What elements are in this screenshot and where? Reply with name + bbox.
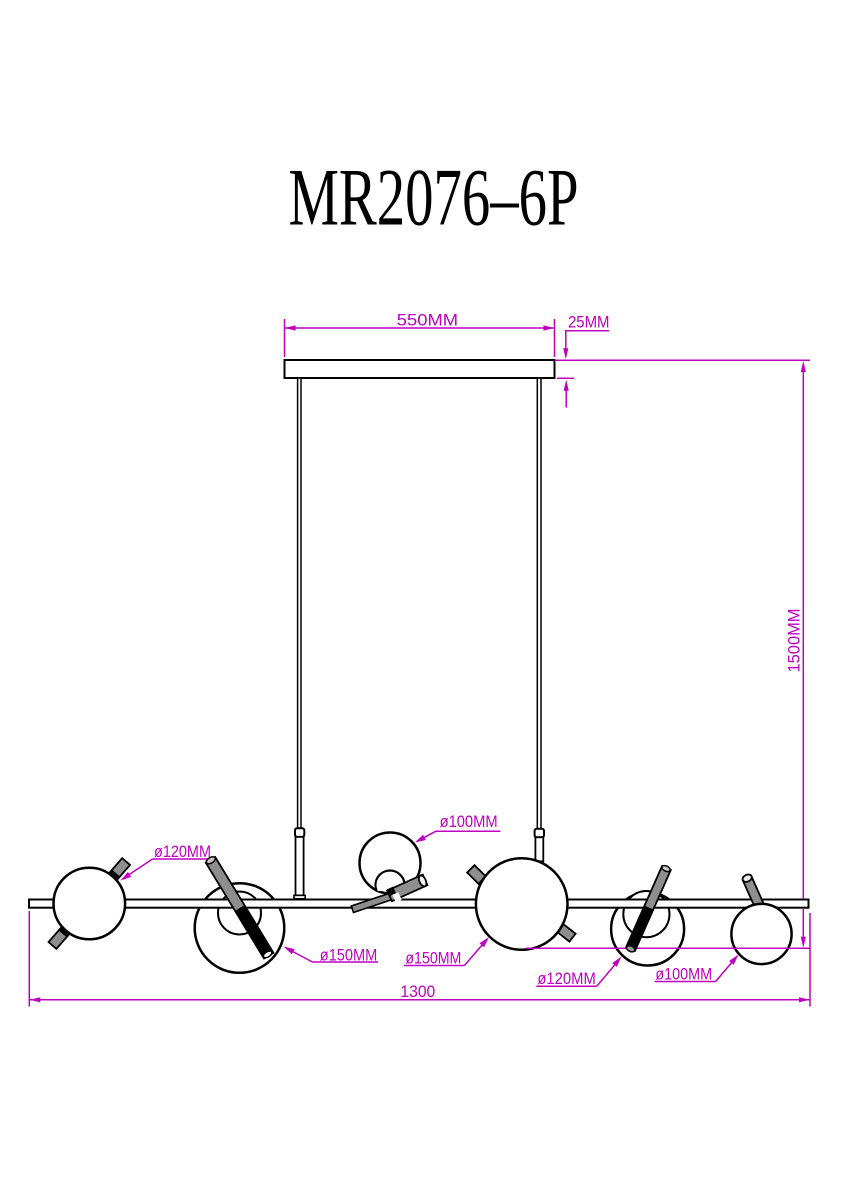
- svg-text:ø120MM: ø120MM: [537, 970, 595, 988]
- svg-text:ø100MM: ø100MM: [440, 813, 498, 831]
- svg-text:1500MM: 1500MM: [786, 609, 804, 673]
- svg-text:ø120MM: ø120MM: [154, 843, 211, 861]
- svg-text:550MM: 550MM: [397, 312, 458, 330]
- svg-text:ø150MM: ø150MM: [405, 950, 461, 968]
- svg-text:MR2076–6P: MR2076–6P: [288, 152, 578, 243]
- svg-text:25MM: 25MM: [568, 314, 610, 332]
- svg-text:ø100MM: ø100MM: [655, 966, 712, 984]
- svg-text:1300: 1300: [400, 983, 435, 1001]
- svg-text:ø150MM: ø150MM: [320, 947, 378, 965]
